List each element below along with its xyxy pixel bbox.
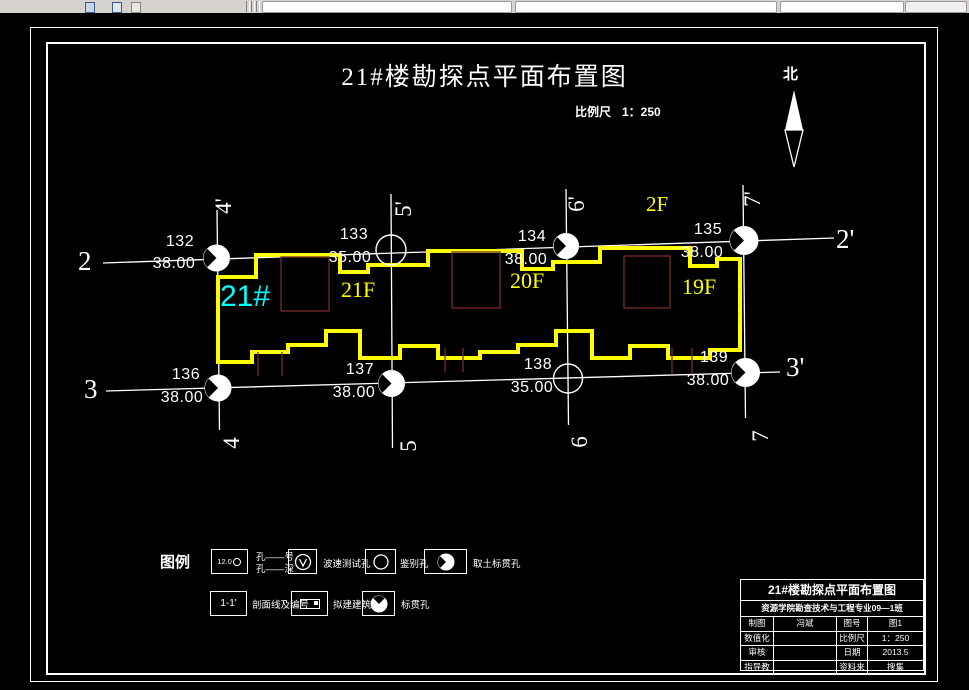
- north-label: 北: [783, 63, 798, 84]
- borehole-elevation: 38.00: [498, 251, 554, 269]
- title-block-cell: 图号: [837, 617, 868, 632]
- legend-symbol-hole-number: 12.0: [211, 549, 248, 574]
- axis-label-5: 5: [396, 431, 422, 461]
- scale-value: 1：250: [622, 103, 661, 120]
- borehole-id: 133: [326, 226, 382, 244]
- title-block-cell: [774, 632, 837, 647]
- borehole-elevation: 38.00: [680, 372, 736, 390]
- legend-label: 取土标贯孔: [473, 556, 521, 570]
- title-block-cell: 制图: [741, 617, 774, 632]
- title-block-cell: 图1: [868, 617, 923, 632]
- legend-symbol-proposed-building: [291, 591, 328, 616]
- spt-hole-icon: [369, 594, 389, 614]
- axis-label-6: 6: [567, 427, 593, 457]
- title-block-cell: 指导教师: [741, 661, 774, 675]
- wave-test-hole-icon: [293, 552, 313, 572]
- toolbar-icon[interactable]: [131, 2, 141, 13]
- title-block-cell: 2013.5: [868, 646, 923, 661]
- building-unit-label: 19F: [682, 274, 716, 300]
- borehole-elevation: 38.00: [674, 244, 730, 262]
- building-annex-label: 2F: [646, 192, 668, 217]
- axis-label-2: 2: [78, 246, 92, 277]
- borehole-id: 138: [510, 356, 566, 374]
- borehole-id: 134: [504, 228, 560, 246]
- borehole-elevation: 38.00: [154, 389, 210, 407]
- toolbar-field[interactable]: [262, 1, 512, 13]
- title-block-cell: 资料来源: [837, 661, 868, 675]
- borehole-id: 139: [686, 349, 742, 367]
- toolbar-icon[interactable]: [112, 2, 122, 13]
- axis-label-4p: 4': [211, 191, 237, 221]
- title-block: 21#楼勘探点平面布置图 资源学院勘查技术与工程专业09—1班 制图 冯斌 图号…: [740, 579, 924, 671]
- toolbar-separator: [251, 1, 255, 12]
- drawing-title: 21#楼勘探点平面布置图: [0, 57, 969, 93]
- scale-label: 比例尺: [575, 103, 611, 120]
- cad-application-window: 21#楼勘探点平面布置图 比例尺 1：250 北 2 2' 3 3' 4' 5'…: [0, 0, 969, 690]
- axis-label-7p: 7': [740, 184, 766, 214]
- building-unit-label: 20F: [510, 268, 544, 294]
- legend-symbol-identification-hole: [365, 549, 396, 574]
- legend-label: 标贯孔: [401, 597, 430, 611]
- title-block-table: 制图 冯斌 图号 图1 数值化 比例尺 1：250 审核 日期 2013.5 指…: [741, 617, 923, 675]
- toolbar-icon[interactable]: [85, 2, 95, 13]
- building-block-label: 21#: [220, 280, 270, 314]
- axis-label-4: 4: [219, 428, 245, 458]
- toolbar-separator: [256, 1, 260, 12]
- title-block-cell: 1：250: [868, 632, 923, 647]
- legend-symbol-wave-test-hole: [288, 549, 317, 574]
- borehole-id: 137: [332, 361, 388, 379]
- title-block-cell: [774, 661, 837, 675]
- legend-symbol-section-line: 1-1': [210, 591, 247, 616]
- legend-symbol-text: 12.0: [217, 557, 232, 566]
- borehole-id: 132: [152, 233, 208, 251]
- toolbar-field[interactable]: [515, 1, 777, 13]
- toolbar-separator: [246, 1, 250, 12]
- sampling-spt-hole-icon: [436, 552, 456, 572]
- title-block-title: 21#楼勘探点平面布置图: [741, 580, 923, 601]
- legend-title: 图例: [160, 551, 190, 572]
- mini-borehole-icon: [232, 557, 242, 567]
- axis-label-2p: 2': [836, 224, 854, 255]
- title-block-cell: 比例尺: [837, 632, 868, 647]
- axis-label-7: 7: [748, 421, 774, 451]
- identification-hole-icon: [371, 552, 391, 572]
- borehole-elevation: 35.00: [322, 249, 378, 267]
- toolbar-field[interactable]: [780, 1, 904, 13]
- toolbar-field[interactable]: [905, 1, 967, 13]
- legend-symbol-text: 1-1': [220, 598, 236, 609]
- title-block-cell: 审核: [741, 646, 774, 661]
- app-toolbar: [0, 0, 969, 14]
- axis-label-5p: 5': [391, 194, 417, 224]
- title-block-cell: 冯斌: [774, 617, 837, 632]
- borehole-id: 135: [680, 221, 736, 239]
- cad-viewport[interactable]: 21#楼勘探点平面布置图 比例尺 1：250 北 2 2' 3 3' 4' 5'…: [0, 13, 969, 690]
- legend-label: 波速测试孔: [323, 556, 371, 570]
- proposed-building-icon: [300, 599, 320, 609]
- title-block-subtitle: 资源学院勘查技术与工程专业09—1班: [741, 601, 923, 617]
- borehole-elevation: 38.00: [326, 384, 382, 402]
- borehole-id: 136: [158, 366, 214, 384]
- building-unit-label: 21F: [341, 277, 375, 303]
- borehole-elevation: 38.00: [146, 255, 202, 273]
- title-block-cell: 日期: [837, 646, 868, 661]
- axis-label-3p: 3': [786, 352, 804, 383]
- legend-symbol-spt-hole: [362, 591, 395, 616]
- title-block-cell: 数值化: [741, 632, 774, 647]
- legend-symbol-sampling-spt-hole: [424, 549, 467, 574]
- title-block-cell: [774, 646, 837, 661]
- building-outline: [218, 248, 740, 362]
- north-arrow-icon: [785, 90, 803, 167]
- borehole-elevation: 35.00: [504, 379, 560, 397]
- axis-label-3: 3: [84, 374, 98, 405]
- axis-label-6p: 6': [564, 189, 590, 219]
- title-block-cell: 搜集: [868, 661, 923, 675]
